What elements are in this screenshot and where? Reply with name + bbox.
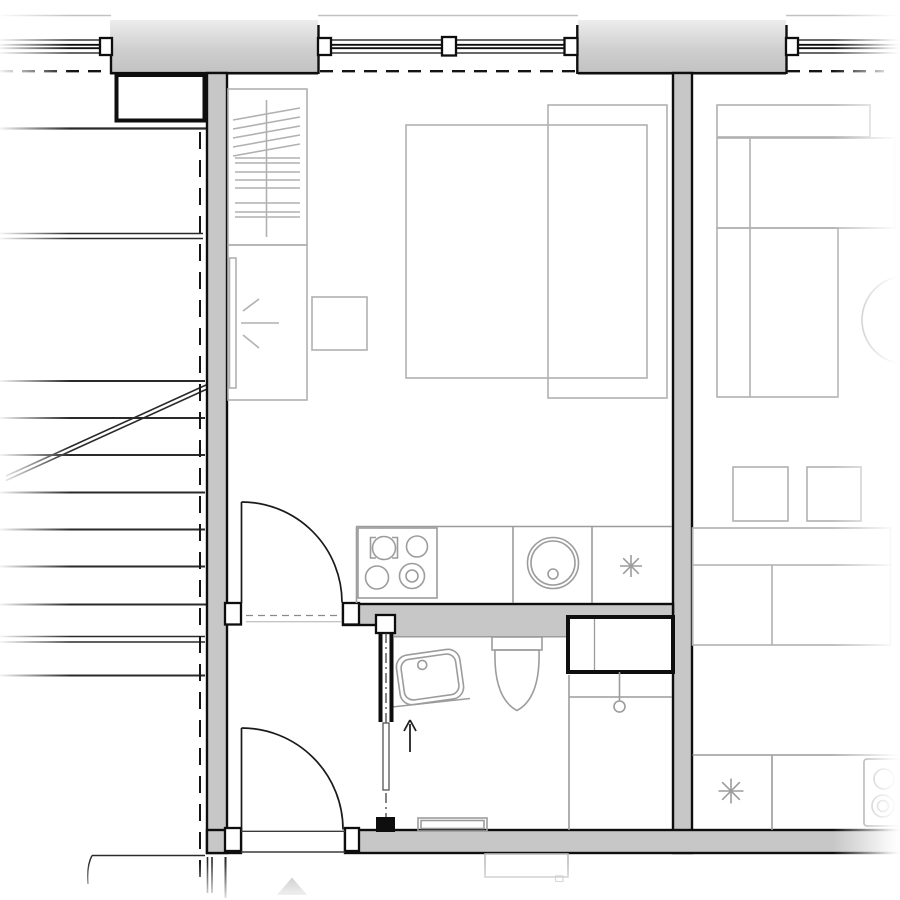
wardrobe bbox=[228, 89, 307, 245]
doors bbox=[242, 502, 396, 832]
wardrobe-outline bbox=[228, 89, 307, 245]
room-swing-door bbox=[242, 502, 343, 603]
door-swing-arc bbox=[242, 728, 344, 830]
window-post bbox=[100, 38, 112, 55]
window-mullion bbox=[442, 37, 456, 56]
stair-duct-shaft bbox=[117, 75, 205, 121]
floor-plan-drawing: Architectural floor plan — studio apartm… bbox=[0, 0, 900, 900]
sliding-door-sill-jamb bbox=[376, 817, 395, 832]
north-wall-segment bbox=[110, 20, 318, 73]
entry-swing-door bbox=[242, 728, 344, 830]
kitchenette bbox=[356, 527, 672, 604]
burner bbox=[373, 537, 396, 560]
walls bbox=[207, 73, 900, 853]
main-room-furniture bbox=[228, 89, 667, 400]
party-wall bbox=[673, 73, 692, 853]
door-swing-arc bbox=[242, 502, 343, 603]
appliance-asterisk-icon bbox=[620, 555, 642, 577]
sink-rim bbox=[528, 538, 579, 589]
west-wall bbox=[207, 73, 227, 853]
burner bbox=[407, 536, 428, 557]
floor-plan-page: Architectural floor plan — studio apartm… bbox=[0, 0, 900, 900]
stool bbox=[733, 467, 788, 521]
basin-counter-edge bbox=[392, 699, 470, 708]
door-jamb bbox=[225, 603, 241, 625]
sliding-leaf bbox=[383, 723, 389, 790]
fade-bottom bbox=[0, 862, 900, 900]
appliance-asterisk-icon bbox=[719, 779, 744, 804]
entry-direction-arrow-icon bbox=[404, 720, 416, 752]
light-ray bbox=[243, 335, 259, 348]
mirror bbox=[230, 258, 237, 388]
sink-drain bbox=[548, 569, 558, 579]
basin-inner bbox=[400, 653, 460, 701]
burner-inner bbox=[406, 570, 418, 582]
south-wall-right bbox=[345, 830, 900, 853]
pocket-wall-bar bbox=[379, 633, 383, 722]
north-facade bbox=[0, 16, 900, 75]
bathroom-pocket-sliding-door bbox=[376, 633, 395, 832]
basin-faucet bbox=[417, 660, 427, 670]
fade-left bbox=[0, 0, 70, 900]
washbasin bbox=[395, 648, 465, 706]
dressing-table bbox=[228, 245, 307, 400]
window-post bbox=[565, 38, 578, 55]
window-post bbox=[786, 38, 798, 55]
door-jamb bbox=[343, 603, 359, 625]
door-jamb bbox=[345, 828, 359, 851]
kitchen-sink bbox=[528, 538, 579, 589]
window-main bbox=[318, 37, 578, 56]
floor-convector-bench bbox=[418, 818, 487, 831]
light-ray bbox=[243, 299, 259, 311]
toilet-bowl bbox=[495, 650, 539, 711]
shower-area bbox=[569, 672, 672, 830]
bed-duvet-lower bbox=[717, 228, 838, 397]
toilet bbox=[492, 637, 542, 711]
side-table bbox=[312, 297, 367, 350]
north-wall-segment bbox=[578, 20, 786, 73]
bench-inner bbox=[421, 821, 484, 829]
burner bbox=[400, 564, 425, 589]
door-jamb bbox=[225, 828, 241, 851]
sliding-door-head-jamb bbox=[376, 615, 395, 633]
toilet-cistern bbox=[492, 637, 542, 650]
cooktop bbox=[358, 528, 437, 598]
pocket-wall-bar bbox=[390, 633, 394, 722]
fade-right bbox=[833, 0, 900, 900]
shower-drain bbox=[614, 701, 625, 712]
bed-frame bbox=[548, 105, 667, 398]
window-post bbox=[318, 38, 331, 55]
bathroom-plumbing-wall bbox=[394, 609, 568, 637]
double-bed bbox=[406, 105, 667, 398]
bathroom-service-shaft bbox=[568, 617, 673, 672]
bed-duvet bbox=[406, 125, 647, 378]
edge-fades bbox=[0, 0, 900, 900]
burner bbox=[366, 566, 389, 589]
